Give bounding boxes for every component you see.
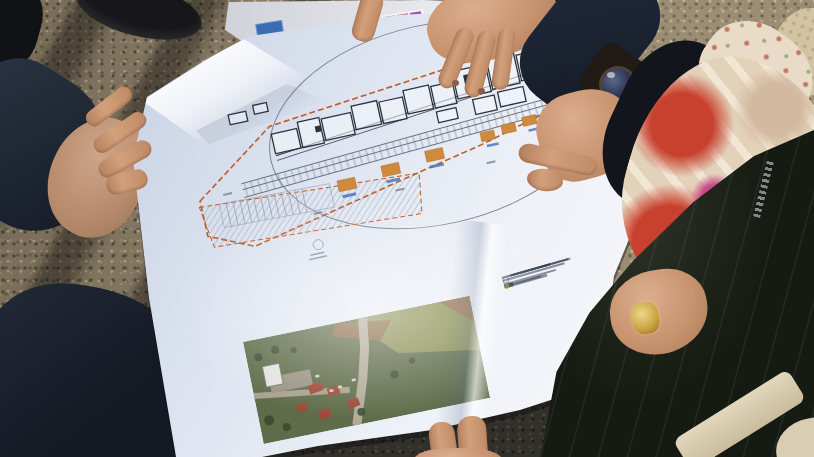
paper-shine (180, 200, 600, 440)
fingernail (452, 80, 459, 86)
photo-scene (0, 0, 814, 457)
watch-glint (607, 72, 615, 78)
fingernail (478, 88, 485, 94)
